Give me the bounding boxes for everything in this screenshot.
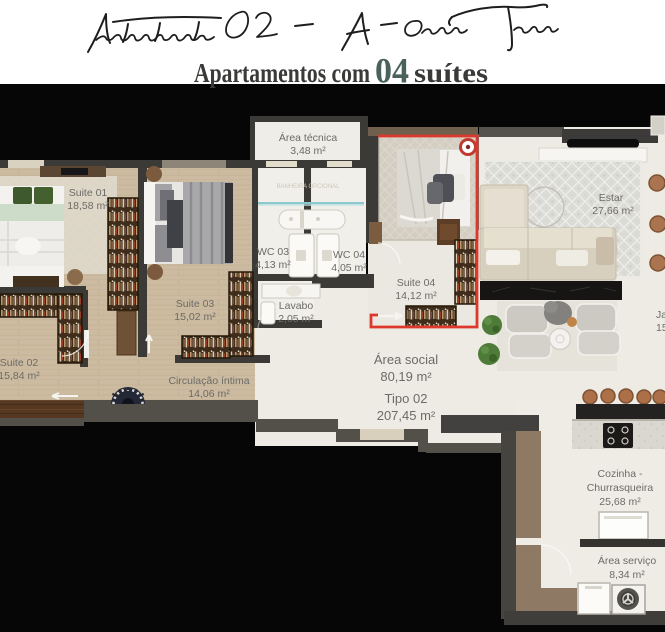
svg-text:15,26 m²: 15,26 m² — [656, 322, 665, 334]
svg-text:Circulação íntima: Circulação íntima — [168, 375, 249, 387]
svg-text:4,05 m²: 4,05 m² — [331, 262, 367, 274]
svg-text:Churrasqueira: Churrasqueira — [587, 482, 654, 494]
svg-text:18,58 m²: 18,58 m² — [67, 200, 109, 212]
svg-text:suítes: suítes — [414, 58, 488, 88]
svg-text:Jantar: Jantar — [656, 309, 665, 321]
svg-text:Cozinha -: Cozinha - — [598, 468, 643, 480]
svg-text:2,05 m²: 2,05 m² — [278, 313, 314, 325]
svg-text:14,06 m²: 14,06 m² — [188, 388, 230, 400]
svg-text:Apartamentos com: Apartamentos com — [194, 58, 370, 88]
svg-text:14,12 m²: 14,12 m² — [395, 290, 437, 302]
svg-text:04: 04 — [375, 51, 409, 91]
svg-text:80,19 m²: 80,19 m² — [380, 369, 432, 384]
svg-text:WC 03: WC 03 — [257, 246, 289, 258]
svg-text:3,48 m²: 3,48 m² — [290, 145, 326, 157]
svg-text:Lavabo: Lavabo — [279, 300, 314, 312]
svg-text:15,84 m²: 15,84 m² — [0, 370, 40, 382]
svg-text:Suite 02: Suite 02 — [0, 357, 38, 369]
svg-text:BANHEIRA OPCIONAL: BANHEIRA OPCIONAL — [276, 184, 340, 190]
svg-text:207,45 m²: 207,45 m² — [377, 408, 436, 423]
svg-text:Estar: Estar — [599, 192, 624, 204]
svg-text:Suite 03: Suite 03 — [176, 298, 215, 310]
svg-text:27,66 m²: 27,66 m² — [592, 205, 634, 217]
svg-text:8,34 m²: 8,34 m² — [609, 569, 645, 581]
svg-text:Área serviço: Área serviço — [598, 554, 657, 567]
svg-text:Tipo 02: Tipo 02 — [385, 391, 428, 406]
svg-text:4,13 m²: 4,13 m² — [255, 259, 291, 271]
svg-text:Área técnica: Área técnica — [279, 131, 338, 144]
svg-text:15,02 m²: 15,02 m² — [174, 311, 216, 323]
svg-text:Área social: Área social — [374, 352, 438, 367]
svg-text:Suite 01: Suite 01 — [69, 187, 108, 199]
svg-text:Suite 04: Suite 04 — [397, 277, 436, 289]
svg-text:25,68 m²: 25,68 m² — [599, 496, 641, 508]
svg-text:WC 04: WC 04 — [333, 249, 365, 261]
